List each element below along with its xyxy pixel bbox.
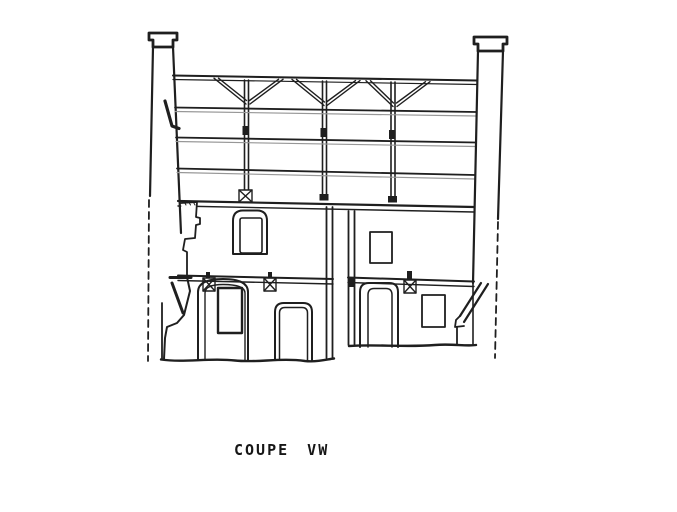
rounded-door-inner [368, 289, 392, 348]
x-base-post-1 [239, 190, 252, 202]
section-drawing [0, 0, 677, 512]
corbel [181, 202, 200, 276]
drawing-title: COUPE VW [234, 441, 329, 459]
lower-wall-profile [164, 277, 190, 359]
niche-arch-inner [205, 285, 245, 361]
right-chimney-capital [474, 37, 507, 51]
niche-recess [218, 288, 242, 333]
rounded-door-inner [280, 308, 308, 361]
left-room-floor-line [178, 276, 333, 280]
post-3-joint-mark [389, 130, 395, 139]
rounded-door-outer [275, 303, 312, 360]
post-1-joint-mark [243, 126, 249, 135]
left-chimney [148, 33, 181, 361]
sloped-coping [455, 283, 488, 344]
black-pad-post-3 [388, 196, 397, 203]
truss-post-2 [323, 81, 327, 194]
left-chimney-capital [149, 33, 177, 47]
right-section-dashed-line [495, 222, 498, 358]
right-chimney [473, 37, 507, 358]
lower-window [422, 295, 445, 327]
post-2-joint-mark [321, 128, 327, 137]
upper-window [370, 232, 392, 263]
left-room-right-wall [327, 207, 333, 358]
buttress-diagonal [172, 283, 183, 313]
arched-window-inner [240, 218, 262, 253]
x-base-floor-left-2 [264, 278, 276, 291]
ground-line-right [349, 345, 476, 346]
right-chimney-inner-face [473, 51, 478, 283]
x-base-floor-right [404, 280, 416, 293]
black-pad-post-2 [320, 194, 329, 201]
left-chimney-outer-edge [150, 47, 153, 196]
sheet: COUPE VW [0, 0, 677, 512]
right-chimney-outer-edge [498, 51, 503, 219]
right-room [348, 232, 488, 347]
left-section-dashed-line [148, 200, 149, 361]
